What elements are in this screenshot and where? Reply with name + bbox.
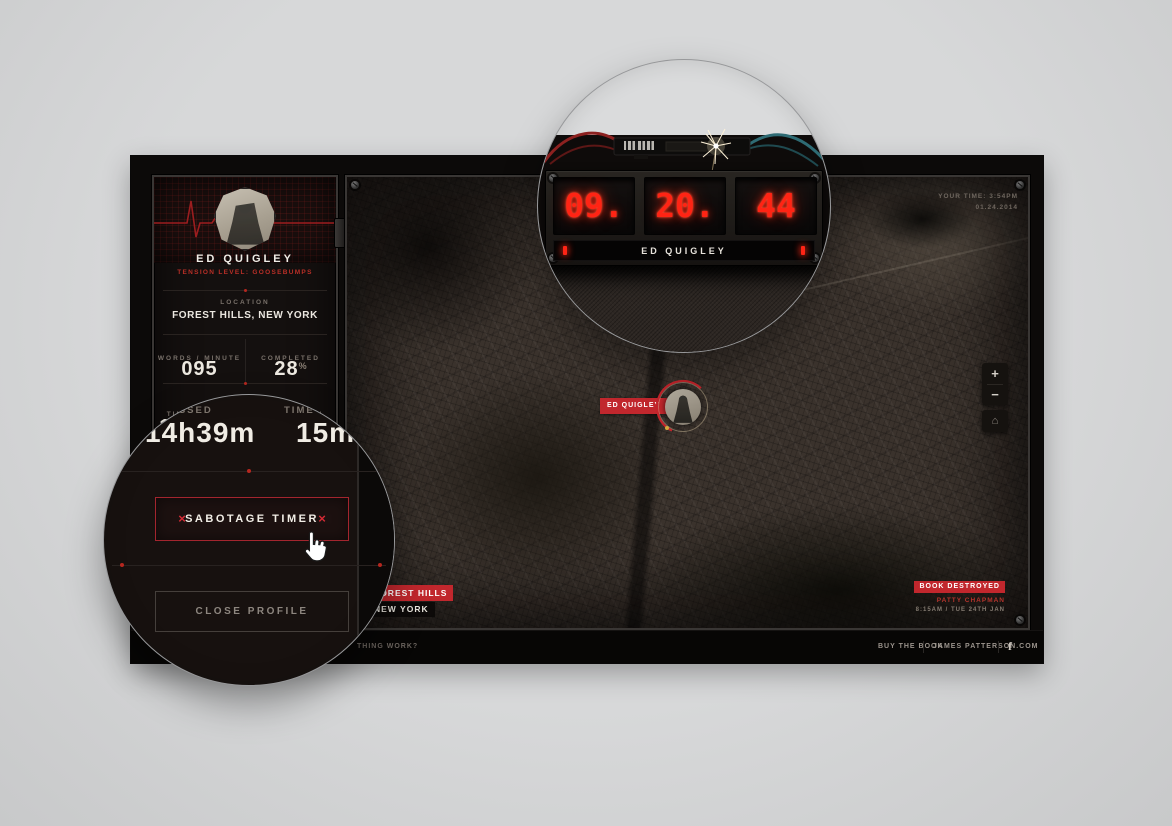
close-profile-label: CLOSE PROFILE xyxy=(195,606,308,617)
footer-divider xyxy=(998,641,999,653)
time-passed-value: 14h39m xyxy=(145,417,255,449)
magnifier-controls: TIME PASSED TIME STOLEN 14h39m 15m × SAB… xyxy=(103,394,395,686)
event-name: PATTY CHAPMAN xyxy=(937,597,1005,604)
screw-icon xyxy=(1016,181,1024,189)
your-date-line: 01.24.2014 xyxy=(938,202,1018,213)
divider-dot xyxy=(244,289,247,292)
marker-end-dot xyxy=(665,426,669,430)
completed-value: 28% xyxy=(245,358,336,381)
event-time: 8:15AM / TUE 24TH JAN xyxy=(916,607,1005,613)
divider xyxy=(163,334,327,335)
zoom-divider xyxy=(987,384,1003,385)
tension-level: TENSION LEVEL: GOOSEBUMPS xyxy=(154,269,336,276)
timer-digits-hours: 09. xyxy=(553,177,635,235)
time-stolen-value: 15m xyxy=(296,417,355,449)
home-icon[interactable]: ⌂ xyxy=(982,410,1008,432)
bomb-device xyxy=(538,116,830,174)
timer-frame: 09. 20. 44 ED QUIGLEY xyxy=(545,170,823,266)
zoom-control: + − xyxy=(982,363,1008,405)
zoom-in-button[interactable]: + xyxy=(982,363,1008,384)
your-time-line: YOUR TIME: 3:54PM xyxy=(938,191,1018,202)
cursor-pointer-icon xyxy=(303,530,330,563)
timer-digits-minutes: 20. xyxy=(644,177,726,235)
timer-digits-seconds: 44 xyxy=(735,177,817,235)
red-indicator-light xyxy=(801,246,805,255)
red-indicator-light xyxy=(563,246,567,255)
screw-icon xyxy=(1016,616,1024,624)
event-badge: BOOK DESTROYED xyxy=(914,581,1005,593)
map-marker-avatar[interactable] xyxy=(665,389,701,425)
column-divider xyxy=(245,339,246,383)
jamespatterson-link[interactable]: JAMES PATTERSON.COM xyxy=(933,643,1038,650)
footer-divider xyxy=(923,641,924,653)
magnifier-timer: 09. 20. 44 ED QUIGLEY xyxy=(537,59,831,353)
completed-number: 28 xyxy=(274,358,298,380)
divider-dot xyxy=(378,563,382,567)
divider-dot xyxy=(247,469,251,473)
divider-dot xyxy=(120,563,124,567)
screw-icon xyxy=(351,181,359,189)
location-value: FOREST HILLS, NEW YORK xyxy=(154,310,336,321)
ekg-header xyxy=(154,177,336,263)
divider-dot xyxy=(244,382,247,385)
divider xyxy=(112,565,386,566)
x-icon: × xyxy=(172,498,192,540)
profile-name: ED QUIGLEY xyxy=(154,253,336,265)
card-edge-shadow xyxy=(357,394,395,686)
percent-sign: % xyxy=(299,361,307,371)
timer-name-bar: ED QUIGLEY xyxy=(553,240,815,261)
timer-name: ED QUIGLEY xyxy=(641,246,727,256)
time-stolen-label: TIME STOLEN xyxy=(284,405,370,416)
sabotage-timer-label: SABOTAGE TIMER xyxy=(185,513,319,525)
magnifier-map-area xyxy=(537,266,831,353)
wpm-value: 095 xyxy=(154,358,245,381)
close-profile-button[interactable]: CLOSE PROFILE xyxy=(155,591,349,632)
time-passed-label: TIME PASSED xyxy=(127,405,213,416)
location-label: LOCATION xyxy=(154,299,336,306)
zoom-out-button[interactable]: − xyxy=(982,384,1008,405)
facebook-icon[interactable]: f xyxy=(1008,639,1012,654)
your-time: YOUR TIME: 3:54PM 01.24.2014 xyxy=(938,191,1018,213)
